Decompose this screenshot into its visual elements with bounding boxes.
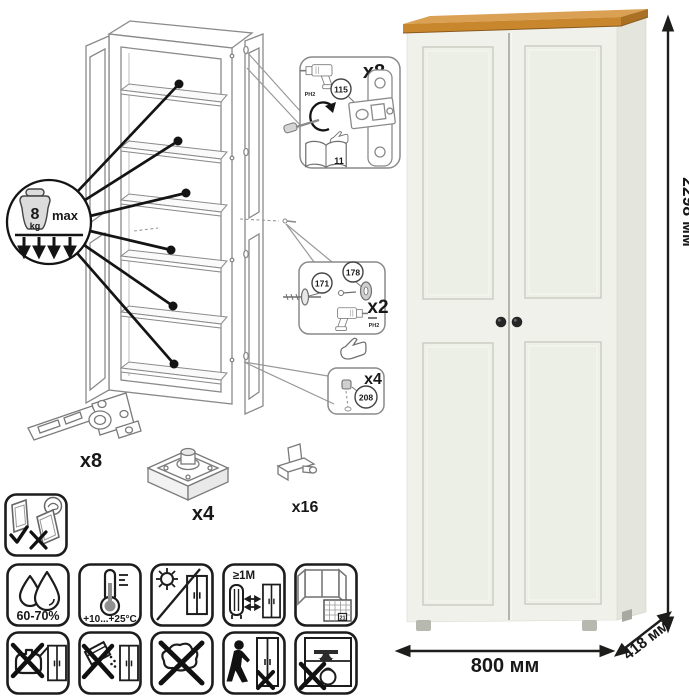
assembly-instruction-sheet: 8 kg max x8 PH2 115 — [0, 0, 689, 700]
bit-label: PH2 — [369, 323, 380, 329]
bit-label: PH2 — [305, 92, 316, 98]
assembly-diagram: 8 kg max x8 PH2 115 — [0, 0, 430, 560]
part-number-178: 178 — [346, 268, 360, 278]
part-number-208: 208 — [359, 393, 373, 403]
part-number-115: 115 — [334, 85, 348, 95]
no-direct-sunlight-icon — [150, 563, 214, 627]
cam-callout: 171 178 x2 PH2 — [283, 219, 389, 334]
height-label: 2298 мм — [679, 177, 689, 247]
humidity-icon: 60-70% — [6, 563, 70, 627]
depth-label: 418 мм — [620, 617, 672, 663]
ventilation-calendar-icon: 21 — [294, 563, 358, 627]
hardware-foot-icon — [148, 449, 228, 501]
plug-icon — [342, 380, 351, 389]
hardware-shelf-pin-count: x16 — [292, 499, 319, 516]
weight-max-label: max — [52, 208, 79, 223]
transport-upright-icon — [4, 493, 68, 557]
calendar-icon: 21 — [324, 600, 351, 622]
temperature-label: +10...+25°С — [83, 614, 136, 625]
care-icons-row-1: 60-70% +10...+25°С ≥1М — [6, 563, 358, 627]
hardware-hinge-count: x8 — [80, 450, 102, 472]
hinge-callout: x8 PH2 115 11 — [247, 52, 400, 168]
wardrobe-side-panel — [617, 15, 646, 620]
calendar-day-label: 21 — [339, 616, 345, 622]
part-number-171: 171 — [315, 279, 329, 289]
sun-icon — [156, 568, 178, 590]
width-label: 800 мм — [471, 655, 540, 677]
no-wet-cloth-icon — [150, 631, 214, 695]
width-dimension: 800 мм — [396, 646, 614, 678]
radiator-icon — [230, 585, 243, 619]
humidity-label: 60-70% — [16, 609, 59, 623]
hardware-shelf-pin-icon — [278, 444, 317, 480]
care-icons-row-2 — [6, 631, 358, 695]
door-knob — [496, 317, 507, 328]
no-dragging-icon — [222, 631, 286, 695]
weight-unit: kg — [30, 221, 41, 231]
temperature-icon: +10...+25°С — [78, 563, 142, 627]
kettlebell-icon — [321, 669, 336, 685]
manual-page-number: 11 — [334, 156, 344, 166]
no-solvent-icon — [6, 631, 70, 695]
no-overload-icon — [294, 631, 358, 695]
hardware-hinge-icon — [28, 393, 141, 440]
shelf-load-limit-badge: 8 kg max — [7, 180, 91, 264]
hardware-foot-count: x4 — [192, 503, 215, 525]
insert-hand-icon — [341, 338, 366, 359]
heat-distance-label: ≥1М — [233, 570, 255, 582]
heat-distance-icon: ≥1М — [222, 563, 286, 627]
wardrobe-product-image: 2298 мм 800 мм 418 мм — [390, 0, 689, 700]
plug-callout: x4 208 — [244, 338, 384, 414]
door-knob — [512, 317, 523, 328]
wireframe-cabinet — [86, 21, 279, 414]
height-dimension: 2298 мм — [663, 16, 689, 632]
no-abrasive-powder-icon — [78, 631, 142, 695]
cam-count-label: x2 — [367, 297, 388, 318]
